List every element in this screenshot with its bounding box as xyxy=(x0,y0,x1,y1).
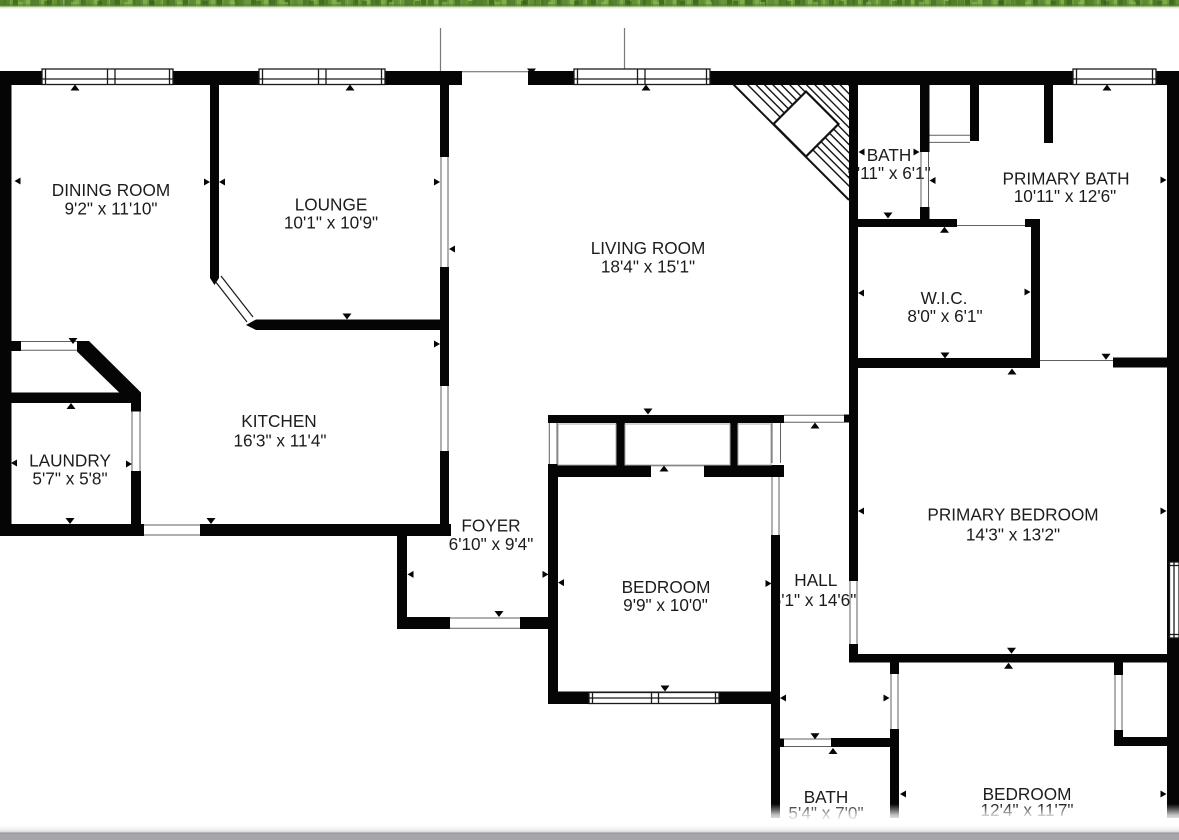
svg-text:BEDROOM: BEDROOM xyxy=(622,577,711,597)
svg-text:9'9" x 10'0": 9'9" x 10'0" xyxy=(623,595,708,615)
svg-text:6'10" x 9'4": 6'10" x 9'4" xyxy=(449,534,534,554)
svg-text:16'3" x 11'4": 16'3" x 11'4" xyxy=(234,431,327,451)
svg-text:5'11" x 6'1": 5'11" x 6'1" xyxy=(847,163,930,183)
svg-text:10'1" x 10'9": 10'1" x 10'9" xyxy=(284,213,378,233)
svg-text:PRIMARY BEDROOM: PRIMARY BEDROOM xyxy=(927,505,1098,525)
svg-text:DINING ROOM: DINING ROOM xyxy=(52,180,170,200)
svg-text:W.I.C.: W.I.C. xyxy=(921,288,968,308)
svg-text:14'3" x 13'2": 14'3" x 13'2" xyxy=(966,525,1060,545)
svg-text:9'2" x 11'10": 9'2" x 11'10" xyxy=(65,199,158,219)
svg-text:LAUNDRY: LAUNDRY xyxy=(29,451,111,471)
svg-text:18'4" x 15'1": 18'4" x 15'1" xyxy=(601,257,695,277)
svg-text:FOYER: FOYER xyxy=(461,516,520,536)
svg-text:10'11" x 12'6": 10'11" x 12'6" xyxy=(1014,186,1117,206)
svg-text:5'7" x 5'8": 5'7" x 5'8" xyxy=(32,469,107,489)
svg-text:HALL: HALL xyxy=(794,570,837,590)
svg-text:8'0" x 6'1": 8'0" x 6'1" xyxy=(907,306,982,326)
svg-text:LOUNGE: LOUNGE xyxy=(295,195,368,215)
svg-text:5'1" x 14'6": 5'1" x 14'6" xyxy=(772,590,857,610)
svg-text:BATH: BATH xyxy=(867,145,912,165)
svg-text:LIVING ROOM: LIVING ROOM xyxy=(591,238,706,258)
svg-text:KITCHEN: KITCHEN xyxy=(241,411,316,431)
